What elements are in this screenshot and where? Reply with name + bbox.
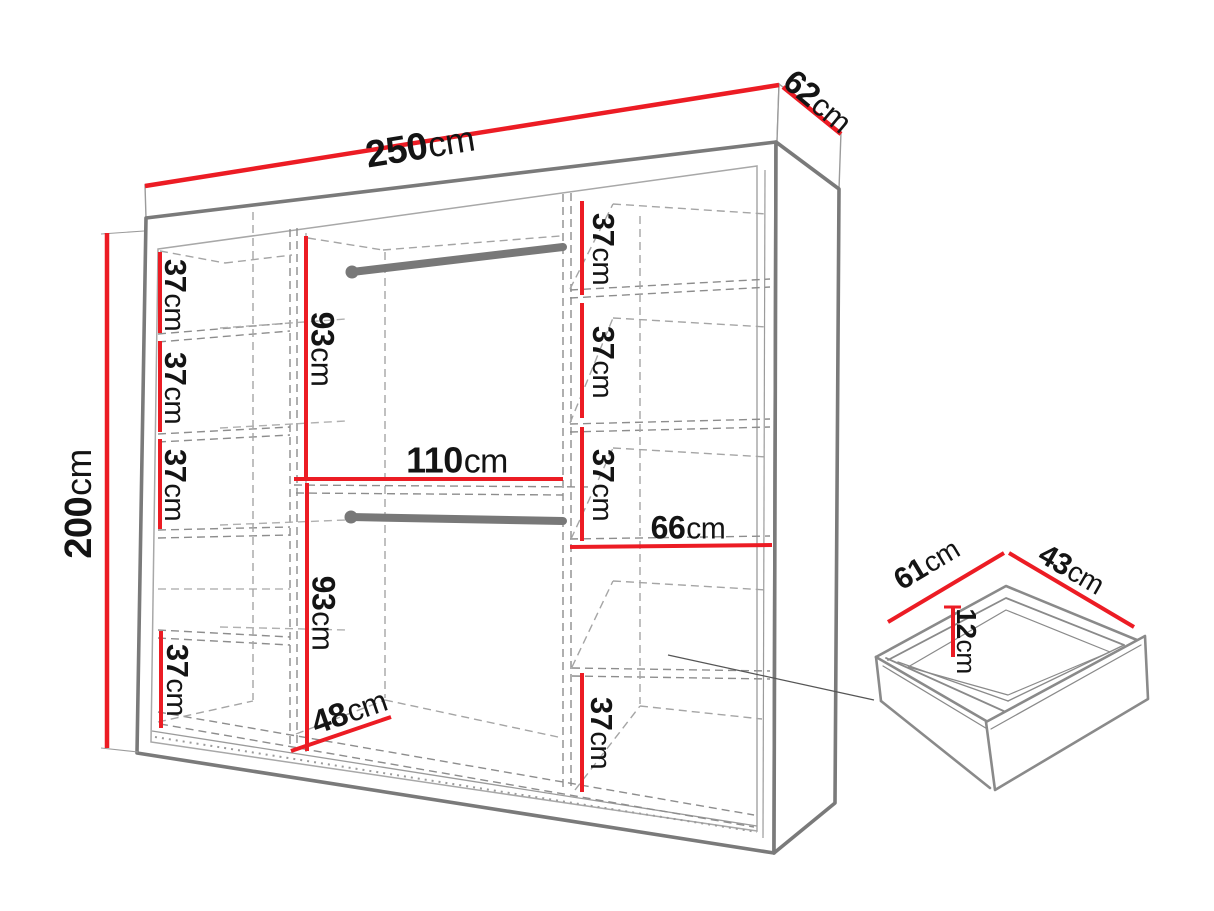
- carcass-inner-opening: [151, 166, 757, 831]
- dim-label-right-shelf-4: 37cm: [585, 697, 617, 769]
- dim-label-right-shelf-1: 37cm: [587, 213, 619, 285]
- dim-label-right-shelf-2: 37cm: [587, 326, 619, 398]
- dim-label-left-shelf-2: 37cm: [159, 352, 191, 424]
- dim-label-left-shelf-3: 37cm: [159, 449, 191, 521]
- dim-label-height-200: 200cm: [60, 449, 98, 559]
- carcass-right-side: [774, 142, 839, 853]
- dim-label-left-shelf-1: 37cm: [159, 259, 191, 331]
- dim-label-right-shelf-3: 37cm: [587, 449, 619, 521]
- dim-label-110: 110cm: [406, 443, 508, 480]
- dim-label-left-shelf-4: 37cm: [161, 644, 193, 716]
- dim-label-93-upper: 93cm: [305, 312, 338, 387]
- wardrobe-dimension-diagram: 250cm 62cm 200cm 37cm 37cm 37cm 37cm 93c…: [0, 0, 1214, 911]
- dim-label-66: 66cm: [651, 511, 726, 544]
- dim-label-drawer-12: 12cm: [952, 608, 980, 673]
- drawer-drawing: [876, 586, 1148, 790]
- dim-label-93-lower: 93cm: [306, 576, 339, 651]
